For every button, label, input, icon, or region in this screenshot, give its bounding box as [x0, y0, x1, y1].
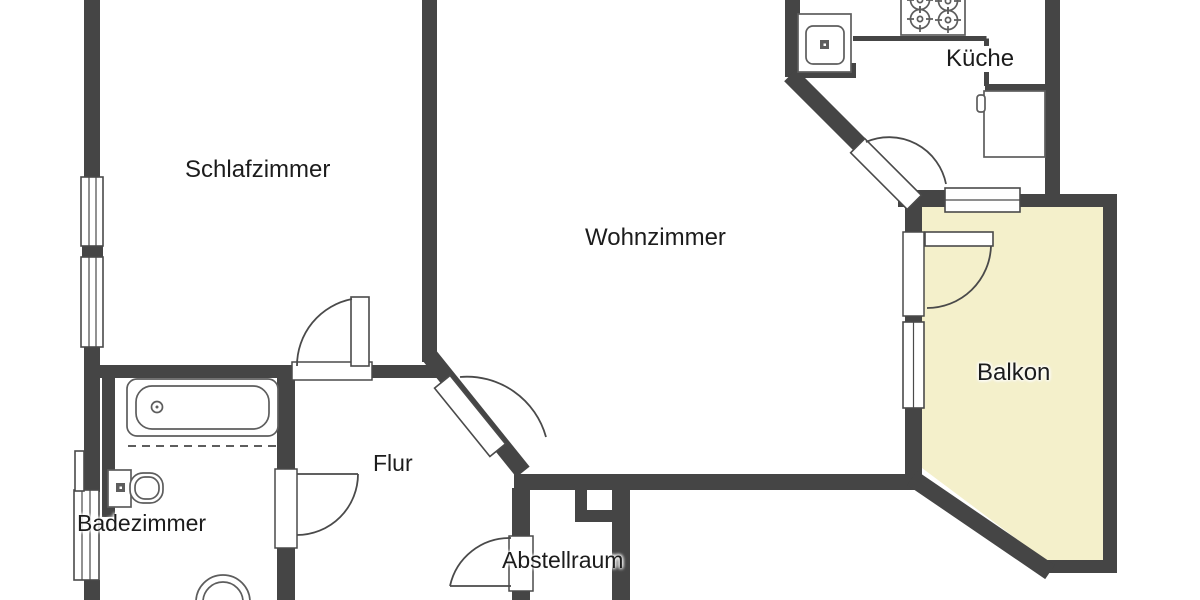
room-label-badezimmer: Badezimmer — [77, 512, 206, 535]
floor-plan-stage: Schlafzimmer Wohnzimmer Küche Balkon Flu… — [0, 0, 1200, 600]
wall-schlafzimmer-bottom-right — [371, 365, 437, 378]
wall-bottom-main — [514, 474, 922, 490]
window-schlafzimmer-lower — [81, 257, 103, 347]
wall-left-window-separator — [82, 245, 103, 257]
washbasin-icon — [196, 575, 250, 600]
doors — [275, 137, 993, 591]
wall-abstellraum-left-upper — [512, 488, 530, 537]
wall-schlafzimmer-bottom-left — [100, 365, 293, 378]
refrigerator-icon — [977, 91, 1045, 157]
toilet-icon — [108, 470, 163, 507]
room-label-flur: Flur — [373, 452, 413, 475]
stove-icon — [901, 0, 965, 35]
bathtub-icon — [127, 379, 278, 436]
duct-shaft-bar — [575, 510, 612, 522]
wall-abstellraum-right — [612, 488, 630, 600]
door-wohnzimmer — [435, 376, 546, 457]
room-label-balkon: Balkon — [977, 361, 1050, 385]
wall-balkon-top — [1017, 194, 1117, 207]
wall-left-bottom — [84, 580, 100, 600]
room-label-abstellraum: Abstellraum — [502, 549, 623, 572]
wall-balkon-right — [1103, 200, 1117, 573]
wall-left-mid — [84, 347, 100, 492]
wall-left-top — [84, 0, 100, 178]
wall-balkon-bottom — [1043, 560, 1117, 573]
window-wohnzimmer-balkon — [903, 322, 924, 408]
door-schlafzimmer — [292, 297, 372, 380]
wall-kueche-right — [1045, 0, 1060, 200]
wall-badezimmer-right-lower — [277, 547, 295, 600]
wall-divider-schlafzimmer-wohnzimmer — [422, 0, 437, 362]
wall-badezimmer-right-upper — [277, 378, 295, 473]
door-badezimmer — [275, 469, 358, 548]
window-kueche-balkon — [945, 188, 1020, 212]
kitchen-sink-icon — [798, 14, 851, 72]
room-label-schlafzimmer: Schlafzimmer — [185, 158, 330, 182]
wall-balkon-left-lower — [905, 406, 922, 478]
window-schlafzimmer-upper — [81, 177, 103, 246]
room-label-wohnzimmer: Wohnzimmer — [585, 226, 726, 250]
room-label-kueche: Küche — [946, 47, 1014, 71]
